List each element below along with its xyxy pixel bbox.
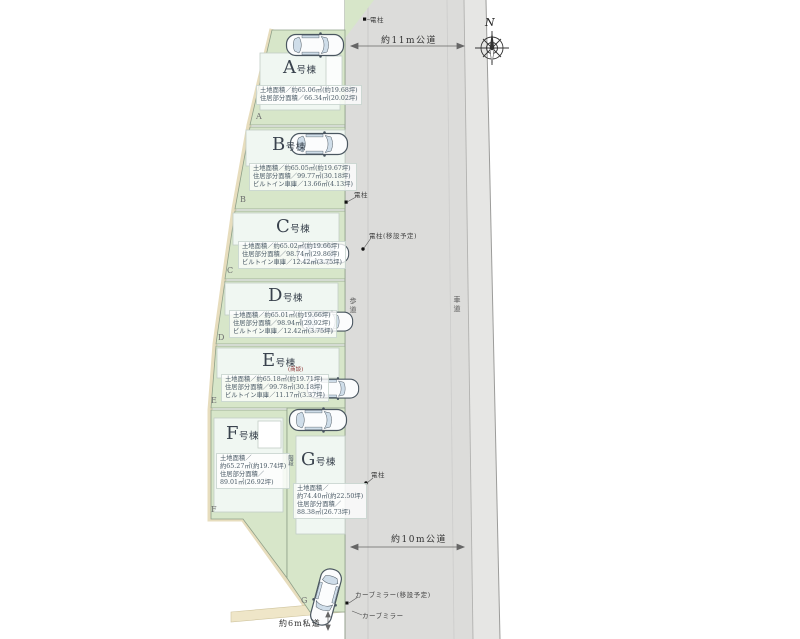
utility-pole-label: 電柱 bbox=[371, 469, 385, 479]
curve-mirror-relocate-label: カーブミラー(移設予定) bbox=[355, 589, 431, 599]
car-icon bbox=[290, 407, 347, 432]
lot-d-info: 土地面積／約65.01㎡(約19.66坪) 住居部分面積／98.94㎡(29.9… bbox=[229, 310, 337, 338]
curve-mirror-label: カーブミラー bbox=[362, 610, 404, 620]
utility-pole-marker bbox=[363, 18, 366, 21]
curve-mirror-marker bbox=[346, 602, 349, 605]
utility-pole-relocate-label: 電柱(移設予定) bbox=[369, 230, 417, 240]
utility-pole-label: 電柱 bbox=[370, 14, 384, 24]
building-a-annex bbox=[326, 56, 342, 88]
lot-g-corner-letter: G bbox=[301, 596, 307, 605]
road-width-label-top: 約11m公道 bbox=[381, 33, 437, 46]
lot-g-side-note: 階段 bbox=[286, 455, 294, 466]
lot-f-info: 土地面積／ 約65.27㎡(約19.74坪) 住居部分面積／ 89.01㎡(26… bbox=[216, 453, 290, 489]
lot-f-title: F号棟 bbox=[226, 423, 259, 444]
building-f-annex bbox=[258, 421, 281, 448]
lot-a-corner-letter: A bbox=[256, 112, 262, 121]
private-road-label: 約6m私道 bbox=[279, 618, 321, 629]
compass-north-label: N bbox=[485, 16, 495, 29]
road-width-label-bottom: 約10m公道 bbox=[391, 532, 447, 545]
lot-a-info: 土地面積／約65.06㎡(約19.68坪) 住居部分面積／66.34㎡(20.0… bbox=[256, 85, 362, 105]
lot-a-title: A号棟 bbox=[283, 57, 317, 78]
lot-c-info: 土地面積／約65.02㎡(約19.66坪) 住居部分面積／98.74㎡(29.8… bbox=[238, 241, 346, 269]
lot-b-info: 土地面積／約65.05㎡(約19.67坪) 住居部分面積／99.77㎡(30.1… bbox=[249, 163, 357, 191]
sidewalk-label: 歩道 bbox=[348, 297, 358, 315]
lot-d-corner-letter: D bbox=[218, 333, 224, 342]
lot-g-info: 土地面積／ 約74.40㎡(約22.50坪) 住居部分面積／ 88.38㎡(26… bbox=[293, 483, 367, 519]
lot-e-info: 土地面積／約65.18㎡(約19.71坪) 住居部分面積／99.78㎡(30.1… bbox=[221, 374, 329, 402]
lot-c-title: C号棟 bbox=[276, 216, 310, 237]
roadway-label: 車道 bbox=[452, 296, 462, 314]
lot-b-corner-letter: B bbox=[240, 195, 246, 204]
lot-f-corner-letter: F bbox=[211, 505, 217, 514]
site-plan: N 約11m公道 約10m公道 約6m私道 歩道 車道 電柱 電柱 電柱(移設予… bbox=[0, 0, 800, 639]
lot-e-status-note: (商談) bbox=[288, 365, 303, 373]
lot-c-corner-letter: C bbox=[227, 266, 233, 275]
lot-g-title: G号棟 bbox=[301, 449, 336, 470]
lot-e-corner-letter: E bbox=[211, 396, 217, 405]
lot-d-title: D号棟 bbox=[268, 285, 303, 306]
lot-b-title: B号棟 bbox=[272, 134, 306, 155]
car-icon bbox=[287, 32, 344, 57]
